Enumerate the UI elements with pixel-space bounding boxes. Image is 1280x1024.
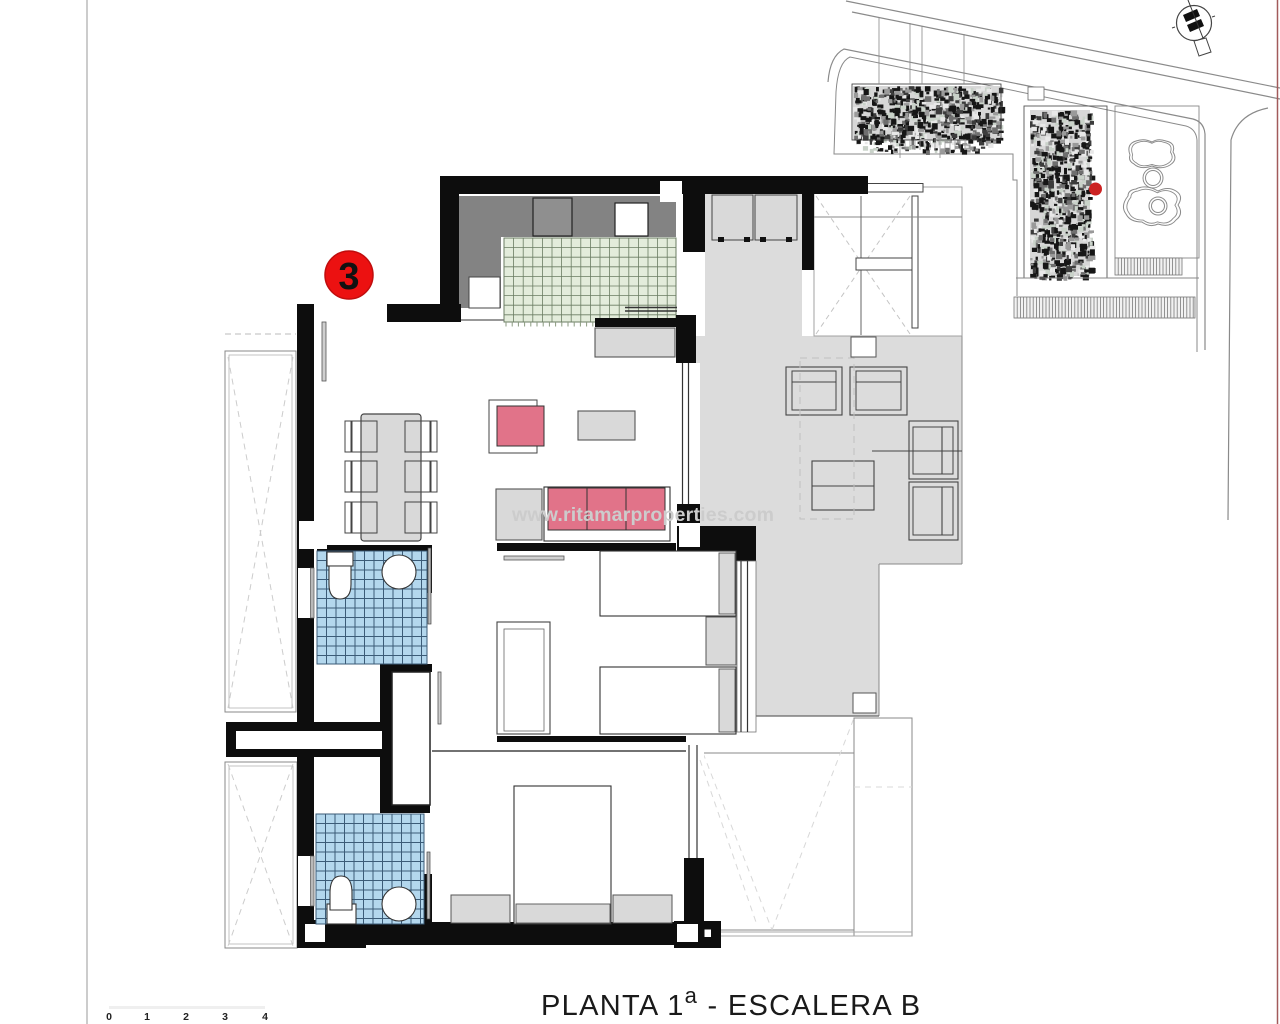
svg-text:2: 2 — [183, 1011, 189, 1023]
svg-text:3: 3 — [222, 1011, 228, 1023]
svg-text:0: 0 — [106, 1011, 112, 1023]
svg-text:3: 3 — [338, 256, 359, 298]
svg-text:www.ritamarproperties.com: www.ritamarproperties.com — [511, 504, 774, 526]
svg-text:4: 4 — [262, 1011, 268, 1023]
svg-text:1: 1 — [144, 1011, 150, 1023]
